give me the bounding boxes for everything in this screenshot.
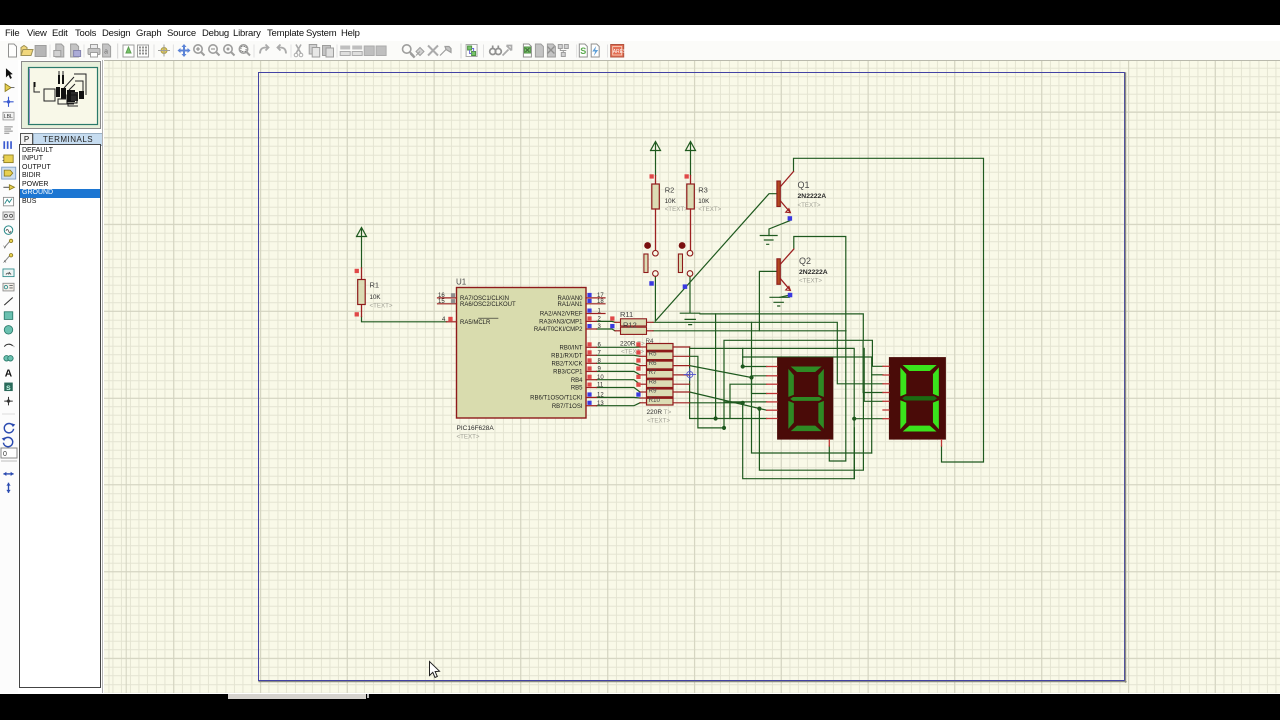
svg-text:15: 15 [438, 299, 445, 305]
svg-text:220R: 220R [647, 409, 663, 416]
svg-text:RA3/AN3/CMP1: RA3/AN3/CMP1 [539, 320, 583, 326]
svg-text:<TEXT>: <TEXT> [621, 348, 644, 355]
svg-text:R11: R11 [620, 310, 633, 319]
svg-text:0: 0 [3, 451, 7, 458]
svg-text:RA2/AN2/VREF: RA2/AN2/VREF [540, 312, 583, 318]
svg-text:11: 11 [597, 383, 604, 389]
svg-text:<TEXT>: <TEXT> [457, 434, 480, 441]
svg-text:10K: 10K [370, 294, 382, 301]
svg-text:S: S [580, 46, 586, 56]
svg-text:R1: R1 [370, 281, 380, 290]
svg-text:10K: 10K [698, 198, 710, 205]
svg-text:2N2222A: 2N2222A [798, 193, 827, 200]
svg-text:R8: R8 [649, 378, 658, 385]
svg-text:<TEXT>: <TEXT> [665, 206, 688, 213]
svg-text:LBL: LBL [4, 114, 13, 120]
svg-text:Q2: Q2 [799, 256, 811, 266]
svg-text:RA6/OSC2/CLKOUT: RA6/OSC2/CLKOUT [460, 302, 516, 308]
svg-text:<TEXT>: <TEXT> [370, 303, 393, 310]
svg-text:RB7/T1OSI: RB7/T1OSI [552, 404, 583, 410]
svg-text:2N2222A: 2N2222A [799, 269, 828, 276]
svg-text:<TEXT>: <TEXT> [647, 418, 670, 425]
svg-text:V: V [3, 245, 6, 250]
svg-text:R9: R9 [649, 388, 658, 395]
svg-text:R12: R12 [623, 320, 637, 329]
svg-text:A: A [3, 259, 6, 264]
svg-text:R5: R5 [649, 351, 658, 358]
svg-text:<TEXT>: <TEXT> [799, 278, 822, 285]
svg-text:RB0/INT: RB0/INT [559, 345, 582, 351]
svg-text:R7: R7 [649, 369, 658, 376]
svg-text:RA1/AN1: RA1/AN1 [557, 302, 583, 308]
svg-text:12: 12 [597, 393, 604, 399]
svg-text:R3: R3 [698, 186, 708, 195]
svg-text:R6: R6 [649, 360, 658, 367]
svg-text:R2: R2 [665, 186, 675, 195]
svg-text:U1: U1 [456, 278, 467, 287]
svg-text:ARES: ARES [613, 49, 627, 55]
svg-text:<TEXT>: <TEXT> [798, 202, 821, 209]
svg-text:T>: T> [664, 409, 672, 416]
svg-text:RB5: RB5 [571, 386, 583, 392]
svg-text:a: a [104, 49, 108, 56]
svg-text:R4: R4 [646, 338, 655, 345]
svg-text:RB2/TX/CK: RB2/TX/CK [551, 361, 582, 367]
svg-text:10K: 10K [665, 198, 677, 205]
svg-text:Q1: Q1 [798, 180, 810, 190]
svg-text:13: 13 [597, 401, 604, 407]
svg-text:<TEXT>: <TEXT> [698, 206, 721, 213]
svg-text:RA5/MCLR: RA5/MCLR [460, 320, 491, 326]
svg-text:220R: 220R [620, 340, 636, 347]
svg-text:RB4: RB4 [571, 378, 583, 384]
svg-text:A: A [5, 368, 13, 379]
svg-text:RA4/T0CKI/CMP2: RA4/T0CKI/CMP2 [534, 327, 583, 333]
svg-text:RB6/T1OSO/T1CKI: RB6/T1OSO/T1CKI [530, 396, 583, 402]
svg-text:S: S [6, 385, 11, 392]
svg-text:18: 18 [597, 299, 604, 305]
svg-text:PIC16F628A: PIC16F628A [457, 425, 495, 432]
svg-text:RB1/RX/DT: RB1/RX/DT [551, 353, 583, 359]
svg-text:10: 10 [597, 375, 604, 381]
svg-text:RB3/CCP1: RB3/CCP1 [553, 370, 583, 376]
svg-text:R10: R10 [649, 397, 661, 404]
